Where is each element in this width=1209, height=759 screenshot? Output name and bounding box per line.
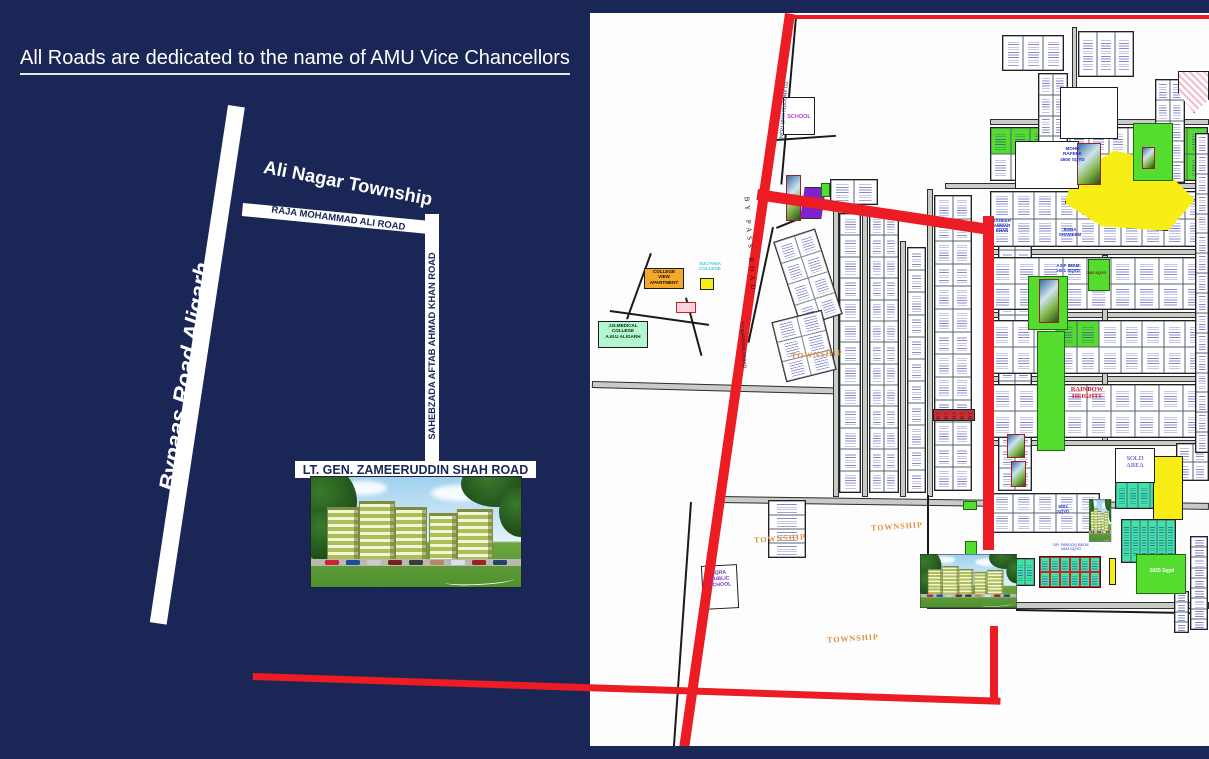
plot-cell <box>991 321 1013 347</box>
plot-cell <box>1034 513 1056 532</box>
plot-cell <box>870 406 884 427</box>
plot-cell <box>884 342 898 363</box>
plot-cell <box>1159 385 1183 411</box>
plot-cell <box>966 410 974 420</box>
plot-cell <box>908 403 925 425</box>
apartment-tower <box>1104 512 1108 533</box>
map-label: TOWNSHIP <box>865 520 929 534</box>
plot-cell <box>935 332 953 355</box>
plot-cell <box>1191 588 1207 598</box>
apartment-tower <box>987 570 1003 596</box>
red-road <box>983 216 994 550</box>
plot-cell <box>953 286 971 309</box>
map-area-photo <box>1039 279 1059 323</box>
sahebzada-road-label: SAHEBZADA AFTAB AHMAD KHAN ROAD <box>427 236 437 456</box>
car-shape <box>325 560 339 565</box>
plot-cell <box>953 354 971 377</box>
plot-cell <box>991 284 1015 310</box>
plot-cell <box>1090 572 1100 587</box>
plot-cell <box>908 248 925 270</box>
plot-cell <box>1196 273 1208 293</box>
map-label: RAINBOW HEIGHTS <box>1066 386 1108 401</box>
plot-cell <box>908 292 925 314</box>
map-label: 1500 SQYD <box>1084 271 1108 275</box>
plot-cell <box>1015 385 1039 411</box>
plot-cell <box>935 445 953 468</box>
plot-cell <box>870 321 884 342</box>
map-label: 8004 SQYD <box>1048 505 1078 515</box>
plot-cell <box>870 342 884 363</box>
plot-cell <box>1196 214 1208 234</box>
plot-cell <box>935 309 953 332</box>
poster: All Roads are dedicated to the name of A… <box>0 0 1209 759</box>
tree-shape <box>1109 503 1111 522</box>
map-label: TOWNSHIP <box>821 632 885 646</box>
map-street <box>900 241 906 497</box>
map-area-green <box>1037 331 1065 451</box>
plot-cell <box>769 515 805 529</box>
plot-block <box>1190 536 1208 630</box>
plot-block <box>1174 591 1189 633</box>
map-label: COLLEGE VIEW APARTMENT <box>644 269 684 285</box>
plot-cell <box>1115 32 1133 76</box>
plot-cell <box>870 257 884 278</box>
plot-cell <box>935 241 953 264</box>
plot-cell <box>884 406 898 427</box>
plot-cell <box>1175 602 1188 612</box>
plot-block <box>1039 556 1101 588</box>
plot-cell <box>840 257 860 278</box>
plot-cell <box>1099 347 1121 373</box>
plot-cell <box>1099 321 1121 347</box>
plot-cell <box>942 410 950 420</box>
plot-cell <box>854 180 877 204</box>
plot-cell <box>1135 385 1159 411</box>
plot-cell <box>958 410 966 420</box>
plot-cell <box>1056 513 1078 532</box>
plot-cell <box>840 300 860 321</box>
plot-cell <box>991 258 1015 284</box>
plot-cell <box>840 364 860 385</box>
car-shape <box>984 594 990 596</box>
car-shape <box>367 560 381 565</box>
plot-cell <box>1111 411 1135 437</box>
apartment-tower <box>928 569 943 596</box>
map-area-white <box>1060 87 1118 139</box>
signature-script <box>445 575 515 586</box>
map-area-photo <box>1007 434 1025 458</box>
plot-block <box>934 195 972 491</box>
plot-cell <box>870 428 884 449</box>
plot-block <box>990 320 1208 374</box>
plot-cell <box>953 264 971 287</box>
plot-cell <box>1040 557 1050 572</box>
raja-road-label: RAJA MOHAMMAD ALI ROAD <box>270 204 405 233</box>
plot-cell <box>1034 192 1056 219</box>
plot-cell <box>991 385 1015 411</box>
red-connector <box>990 626 998 704</box>
map-street <box>927 189 933 497</box>
plot-cell <box>884 321 898 342</box>
map-area-yellow <box>700 278 714 290</box>
building-rendering <box>310 476 522 588</box>
plot-cell <box>1138 482 1149 508</box>
plot-cell <box>935 377 953 400</box>
plot-cell <box>1196 333 1208 353</box>
plot-cell <box>1043 36 1063 70</box>
car-shape <box>493 560 507 565</box>
plot-cell <box>953 332 971 355</box>
plot-cell <box>1080 557 1090 572</box>
map-area-photo <box>1011 461 1026 487</box>
plot-cell <box>908 337 925 359</box>
plot-cell <box>884 428 898 449</box>
car-shape <box>388 560 402 565</box>
plot-cell <box>991 347 1013 373</box>
plot-cell <box>1060 557 1070 572</box>
plot-cell <box>870 235 884 256</box>
plot-cell <box>1196 353 1208 373</box>
plot-cell <box>1025 559 1034 585</box>
map-area-green <box>965 541 977 555</box>
plot-cell <box>1060 572 1070 587</box>
plot-cell <box>1111 284 1135 310</box>
plot-cell <box>1070 557 1080 572</box>
plot-cell <box>870 471 884 492</box>
plot-cell <box>935 467 953 490</box>
plot-cell <box>991 192 1013 219</box>
plot-cell <box>840 449 860 470</box>
plot-cell <box>1039 116 1053 137</box>
car-shape <box>1108 531 1109 533</box>
plot-cell <box>908 470 925 492</box>
plot-cell <box>1170 100 1184 120</box>
plot-cell <box>1135 411 1159 437</box>
plot-block <box>1015 558 1035 586</box>
plot-cell <box>991 494 1013 513</box>
plot-block <box>768 500 806 558</box>
plot-cell <box>1121 321 1143 347</box>
plot-cell <box>1156 100 1170 120</box>
plot-block <box>869 213 899 493</box>
plot-cell <box>1164 321 1186 347</box>
plot-cell <box>1013 347 1035 373</box>
plot-cell <box>1121 347 1143 373</box>
red-road <box>785 15 1209 19</box>
plot-cell <box>1196 412 1208 432</box>
signature-script <box>982 602 1014 608</box>
map-street <box>592 381 836 394</box>
plot-cell <box>884 257 898 278</box>
map-label: SULTANIA COLLEGE <box>690 261 730 271</box>
map-label: J.N.MEDICAL COLLEGE A.M.U ALIGARH <box>598 323 648 339</box>
building-rendering <box>920 554 1017 608</box>
apartment-tower <box>359 501 395 563</box>
plot-cell <box>1191 568 1207 578</box>
plot-cell <box>935 354 953 377</box>
car-shape <box>1004 594 1010 596</box>
plot-cell <box>935 264 953 287</box>
plot-cell <box>1135 284 1159 310</box>
plot-cell <box>840 214 860 235</box>
plot-cell <box>1003 36 1023 70</box>
township-map: SCHOOLTO ANOOPSHAHR ROADBY PASS ROADTO B… <box>590 13 1209 746</box>
plot-cell <box>884 235 898 256</box>
apartment-tower <box>959 569 974 596</box>
plot-cell <box>953 196 971 219</box>
plot-cell <box>1193 462 1209 480</box>
plot-cell <box>1191 609 1207 619</box>
raja-mohammad-ali-road-shape: RAJA MOHAMMAD ALI ROAD <box>242 203 434 234</box>
car-shape <box>936 594 942 596</box>
plot-block <box>990 493 1100 533</box>
plot-cell <box>840 428 860 449</box>
car-shape <box>946 594 952 596</box>
plot-cell <box>1159 258 1183 284</box>
plot-cell <box>840 385 860 406</box>
map-label: SOLD AREA <box>1118 455 1152 470</box>
plot-cell <box>1039 95 1053 116</box>
plot-cell <box>991 513 1013 532</box>
map-label: DR. FAROOQ BEGA 3443 SQYD <box>1046 543 1096 552</box>
car-shape <box>451 560 465 565</box>
plot-cell <box>950 410 958 420</box>
plot-block <box>1195 133 1209 453</box>
plot-cell <box>884 364 898 385</box>
plot-cell <box>953 377 971 400</box>
plot-cell <box>991 154 1011 180</box>
plot-cell <box>769 543 805 557</box>
plot-cell <box>884 300 898 321</box>
plot-cell <box>1013 513 1035 532</box>
car-shape <box>409 560 423 565</box>
plot-cell <box>1135 258 1159 284</box>
plot-cell <box>1111 258 1135 284</box>
plot-cell <box>1175 612 1188 622</box>
plot-cell <box>769 501 805 515</box>
plot-cell <box>840 321 860 342</box>
plot-cell <box>1196 293 1208 313</box>
tree-shape <box>1006 559 1017 583</box>
plot-cell <box>1191 537 1207 547</box>
plot-cell <box>991 128 1011 154</box>
plot-block <box>907 247 926 493</box>
map-boundary-line <box>1016 609 1194 614</box>
plot-cell <box>908 425 925 447</box>
plot-cell <box>1196 253 1208 273</box>
apartment-tower <box>395 507 427 563</box>
ltgen-road-label: LT. GEN. ZAMEERUDDIN SHAH ROAD <box>303 463 528 477</box>
map-label: MOHD RAFEEK 4500 SQYD <box>1045 146 1100 162</box>
map-label: SCHOOL <box>783 114 815 120</box>
plot-cell <box>935 422 953 445</box>
plot-cell <box>908 359 925 381</box>
plot-cell <box>953 467 971 490</box>
car-shape <box>346 560 360 565</box>
plot-cell <box>1087 411 1111 437</box>
plot-cell <box>908 448 925 470</box>
plot-cell <box>953 422 971 445</box>
map-label: IQRA PUBLIC SCHOOL <box>702 570 739 590</box>
plot-cell <box>1142 347 1164 373</box>
plot-cell <box>1196 154 1208 174</box>
plot-cell <box>840 235 860 256</box>
car-shape <box>994 594 1000 596</box>
plot-cell <box>1196 233 1208 253</box>
car-shape <box>927 594 933 596</box>
map-area-pinksmall <box>676 302 696 313</box>
plot-cell <box>1196 432 1208 452</box>
plot-cell <box>908 381 925 403</box>
map-label: 2025 Sqyd <box>1140 569 1184 575</box>
plot-cell <box>1127 482 1138 508</box>
map-street <box>862 207 868 497</box>
car-shape <box>472 560 486 565</box>
plot-cell <box>1175 622 1188 632</box>
plot-cell <box>1196 194 1208 214</box>
car-shape <box>965 594 971 596</box>
apartment-tower <box>327 507 359 563</box>
plot-cell <box>840 471 860 492</box>
plot-cell <box>1013 494 1035 513</box>
plot-cell <box>1097 32 1115 76</box>
plot-block <box>1078 31 1134 77</box>
map-area-photo <box>1142 147 1155 169</box>
building-rendering <box>1089 499 1111 542</box>
plot-cell <box>908 315 925 337</box>
plot-cell <box>1111 385 1135 411</box>
plot-cell <box>1079 32 1097 76</box>
plot-cell <box>953 445 971 468</box>
map-label: ZAHEER ANWAR KHAN <box>982 218 1022 233</box>
plot-cell <box>884 385 898 406</box>
map-area-green <box>963 501 977 510</box>
plot-cell <box>1016 559 1025 585</box>
plot-cell <box>1023 36 1043 70</box>
plot-cell <box>1090 557 1100 572</box>
map-area-yellow <box>1153 456 1183 520</box>
plot-cell <box>884 278 898 299</box>
plot-cell <box>1063 411 1087 437</box>
car-shape <box>956 594 962 596</box>
plot-cell <box>870 300 884 321</box>
plot-cell <box>1196 373 1208 393</box>
plot-cell <box>870 278 884 299</box>
plot-cell <box>1040 572 1050 587</box>
plot-cell <box>840 278 860 299</box>
car-shape <box>975 594 981 596</box>
plot-cell <box>1080 572 1090 587</box>
plot-cell <box>1050 557 1060 572</box>
plot-cell <box>1191 619 1207 629</box>
plot-cell <box>870 364 884 385</box>
plot-block <box>933 409 975 421</box>
plot-cell <box>1077 321 1099 347</box>
plot-cell <box>1116 482 1127 508</box>
plot-cell <box>1191 557 1207 567</box>
plot-cell <box>1196 313 1208 333</box>
plot-cell <box>1191 598 1207 608</box>
plot-cell <box>935 286 953 309</box>
apartment-tower <box>429 513 457 563</box>
plot-cell <box>1142 321 1164 347</box>
signature-script <box>1103 537 1110 541</box>
plot-cell <box>1122 520 1131 562</box>
plot-cell <box>884 471 898 492</box>
plot-cell <box>1156 80 1170 100</box>
plot-cell <box>953 241 971 264</box>
plot-cell <box>1191 578 1207 588</box>
ali-nagar-township-label: Ali Nagar Township <box>262 156 453 214</box>
plot-cell <box>1039 74 1053 95</box>
plot-cell <box>870 449 884 470</box>
plot-cell <box>1196 134 1208 154</box>
plot-cell <box>1191 547 1207 557</box>
map-area-yellow <box>1109 558 1116 585</box>
page-title: All Roads are dedicated to the name of A… <box>20 47 570 75</box>
plot-cell <box>953 309 971 332</box>
apartment-tower <box>457 509 493 563</box>
map-area-green <box>821 183 830 197</box>
plot-cell <box>908 270 925 292</box>
plot-block <box>1002 35 1064 71</box>
plot-cell <box>934 410 942 420</box>
bypass-road-label: Bypaas Road Aligarh <box>139 167 231 586</box>
apartment-tower <box>942 566 958 596</box>
plot-cell <box>884 449 898 470</box>
map-label: RANA SHAMEEM <box>1048 227 1092 237</box>
plot-cell <box>1070 572 1080 587</box>
plot-cell <box>1164 347 1186 373</box>
plot-block <box>771 310 836 383</box>
plot-cell <box>1013 192 1035 219</box>
plot-cell <box>1196 392 1208 412</box>
apartment-tower <box>974 572 987 596</box>
plot-cell <box>1077 347 1099 373</box>
plot-cell <box>1159 284 1183 310</box>
plot-cell <box>870 385 884 406</box>
plot-cell <box>840 406 860 427</box>
plot-cell <box>1050 572 1060 587</box>
car-shape <box>430 560 444 565</box>
plot-cell <box>1159 411 1183 437</box>
plot-cell <box>1196 174 1208 194</box>
